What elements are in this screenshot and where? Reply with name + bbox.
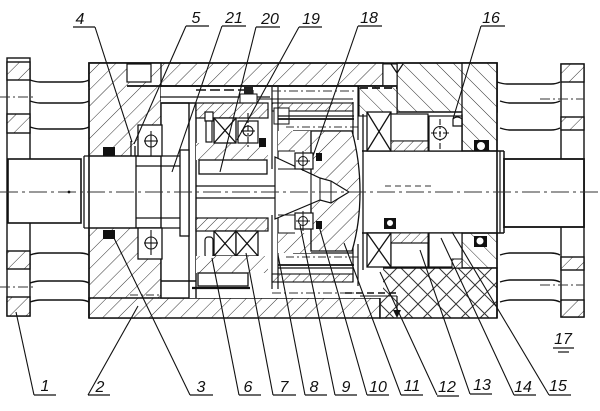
svg-text:10: 10 xyxy=(369,379,387,396)
svg-text:7: 7 xyxy=(280,379,290,396)
svg-text:5: 5 xyxy=(192,10,201,27)
svg-text:18: 18 xyxy=(360,10,378,27)
svg-text:9: 9 xyxy=(342,379,351,396)
svg-text:16: 16 xyxy=(482,10,500,27)
svg-text:17: 17 xyxy=(554,331,573,348)
svg-text:13: 13 xyxy=(473,377,491,394)
svg-text:11: 11 xyxy=(404,378,421,395)
svg-text:19: 19 xyxy=(302,11,320,28)
svg-text:20: 20 xyxy=(260,11,279,28)
svg-text:12: 12 xyxy=(438,379,456,396)
svg-text:14: 14 xyxy=(514,379,532,396)
svg-text:1: 1 xyxy=(41,378,50,395)
svg-text:15: 15 xyxy=(549,378,567,395)
svg-text:8: 8 xyxy=(310,379,319,396)
svg-text:6: 6 xyxy=(244,379,253,396)
svg-text:4: 4 xyxy=(76,11,85,28)
svg-text:3: 3 xyxy=(197,379,206,396)
svg-text:21: 21 xyxy=(224,10,243,27)
svg-text:2: 2 xyxy=(95,379,105,396)
